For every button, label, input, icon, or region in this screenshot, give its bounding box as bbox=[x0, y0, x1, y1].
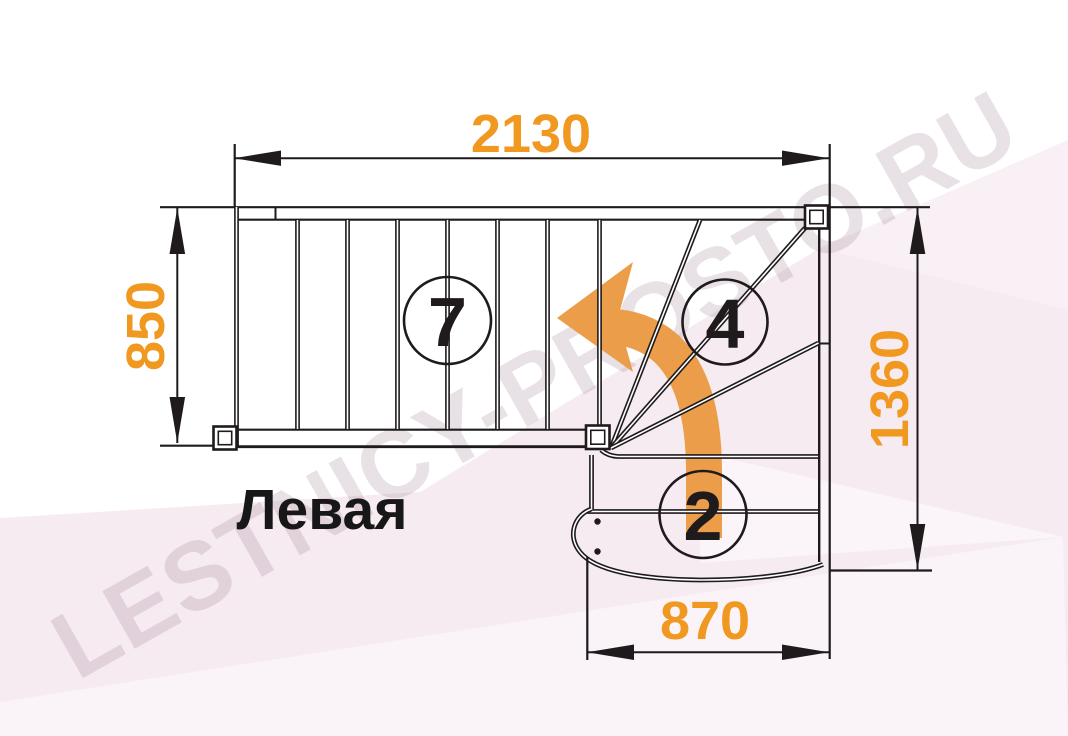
staircase-plan-drawing: LESTNICY-PROSTO.RU bbox=[0, 0, 1068, 736]
upper-flight-count: 7 bbox=[428, 283, 467, 361]
dim-value-right-height: 1360 bbox=[860, 329, 920, 449]
orientation-label: Левая bbox=[237, 478, 408, 542]
staircase-plan-svg: LESTNICY-PROSTO.RU bbox=[0, 0, 1068, 736]
dim-value-left-height: 850 bbox=[116, 281, 176, 371]
newel-post-top-right-inner bbox=[810, 210, 823, 223]
baluster-dot bbox=[594, 518, 600, 524]
newel-post-bottom-left-inner bbox=[218, 431, 231, 444]
lower-flight-count: 2 bbox=[684, 477, 723, 555]
winder-count: 4 bbox=[706, 285, 745, 363]
dim-value-top-width: 2130 bbox=[471, 104, 591, 164]
dim-value-bottom-width: 870 bbox=[660, 591, 750, 651]
newel-post-center-inner bbox=[591, 430, 605, 444]
baluster-dot bbox=[594, 548, 600, 554]
